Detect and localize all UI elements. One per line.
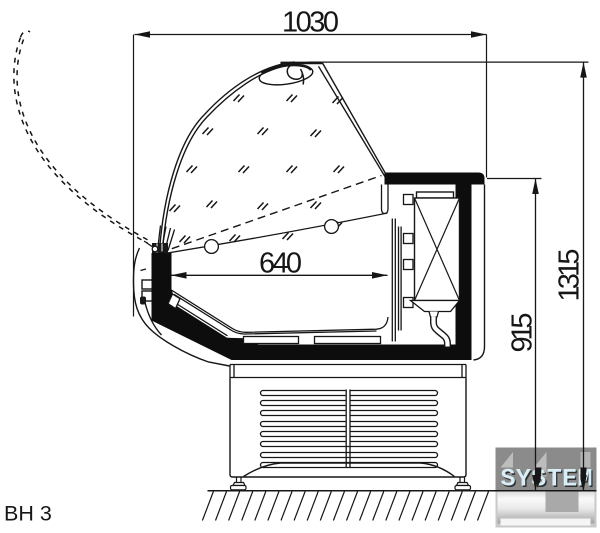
svg-text:1030: 1030 — [282, 7, 339, 39]
svg-text:BH 3: BH 3 — [4, 502, 52, 526]
svg-text:SYSTEM: SYSTEM — [501, 465, 593, 494]
svg-text:915: 915 — [507, 313, 539, 353]
svg-text:640: 640 — [259, 248, 302, 280]
svg-text:1315: 1315 — [554, 249, 586, 302]
